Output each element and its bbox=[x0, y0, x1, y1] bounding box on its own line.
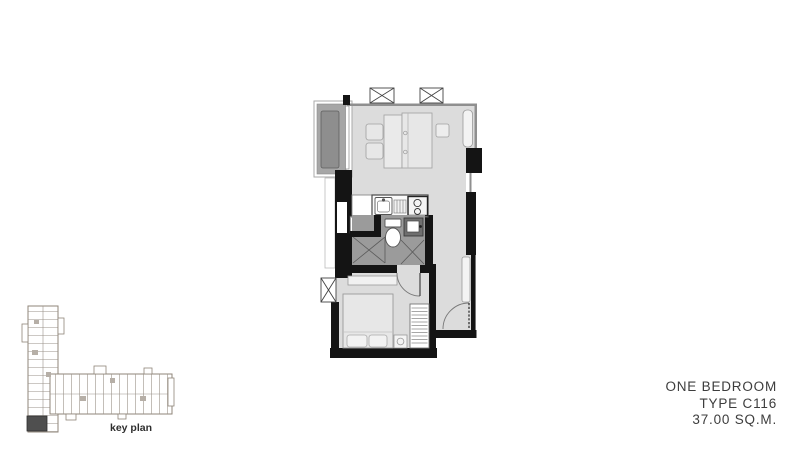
wall-bath-right bbox=[425, 215, 433, 265]
bedside-table bbox=[394, 335, 407, 348]
floor-plan-page: key plan ONE BEDROOM TYPE C116 37.00 SQ.… bbox=[0, 0, 800, 457]
wash-basin bbox=[404, 218, 423, 236]
wall-bedroom-bottom bbox=[330, 348, 437, 358]
wall-top-line bbox=[347, 104, 477, 107]
wall-bath-divider-v bbox=[374, 215, 381, 233]
wall-entry-right bbox=[471, 255, 476, 333]
wall-bedroom-right bbox=[429, 273, 436, 353]
unit-type-code: TYPE C116 bbox=[665, 396, 777, 413]
wall-right-col-1 bbox=[466, 148, 482, 173]
wall-console bbox=[463, 110, 473, 147]
wardrobe bbox=[410, 304, 429, 348]
shoe-cabinet bbox=[462, 257, 470, 302]
key-plan: key plan bbox=[22, 306, 174, 434]
tv-shelf bbox=[348, 276, 397, 285]
wall-bedroom-left bbox=[331, 302, 339, 352]
kitchen-sink bbox=[375, 198, 392, 215]
balcony-planter bbox=[321, 111, 339, 168]
wall-bedroom-top-left bbox=[335, 264, 397, 273]
stove bbox=[408, 197, 428, 216]
pillow-2 bbox=[369, 335, 387, 347]
sofa bbox=[402, 113, 432, 168]
unit-plan bbox=[314, 88, 482, 358]
wall-right-glass-mid bbox=[470, 173, 472, 193]
wall-right-glass-top bbox=[475, 104, 478, 150]
ac-ledge bbox=[325, 178, 335, 268]
wall-stub-top bbox=[343, 95, 350, 105]
unit-type-label: ONE BEDROOM bbox=[665, 379, 777, 396]
dining-table bbox=[384, 115, 402, 168]
wall-entry-bottom bbox=[433, 330, 477, 338]
unit-area: 37.00 SQ.M. bbox=[665, 412, 777, 429]
toilet bbox=[385, 219, 401, 247]
wall-right-col-2 bbox=[466, 192, 476, 255]
wall-bath-divider-h bbox=[350, 231, 381, 237]
wall-bedroom-top-right bbox=[420, 264, 436, 273]
window-icon-bedroom bbox=[321, 278, 336, 302]
window-icon-living-1 bbox=[370, 88, 394, 103]
wall-core-left-niche bbox=[337, 202, 347, 233]
dining-chair-1 bbox=[366, 124, 383, 140]
key-plan-label: key plan bbox=[110, 422, 152, 434]
side-table bbox=[436, 124, 449, 137]
sliding-door bbox=[346, 106, 350, 169]
dish-rack bbox=[394, 200, 406, 213]
kitchen-cabinet bbox=[352, 195, 372, 218]
window-icon-living-2 bbox=[420, 88, 443, 103]
unit-title-block: ONE BEDROOM TYPE C116 37.00 SQ.M. bbox=[665, 379, 777, 429]
key-plan-highlighted-unit bbox=[27, 416, 47, 431]
pillow-1 bbox=[347, 335, 367, 347]
dining-chair-2 bbox=[366, 143, 383, 159]
